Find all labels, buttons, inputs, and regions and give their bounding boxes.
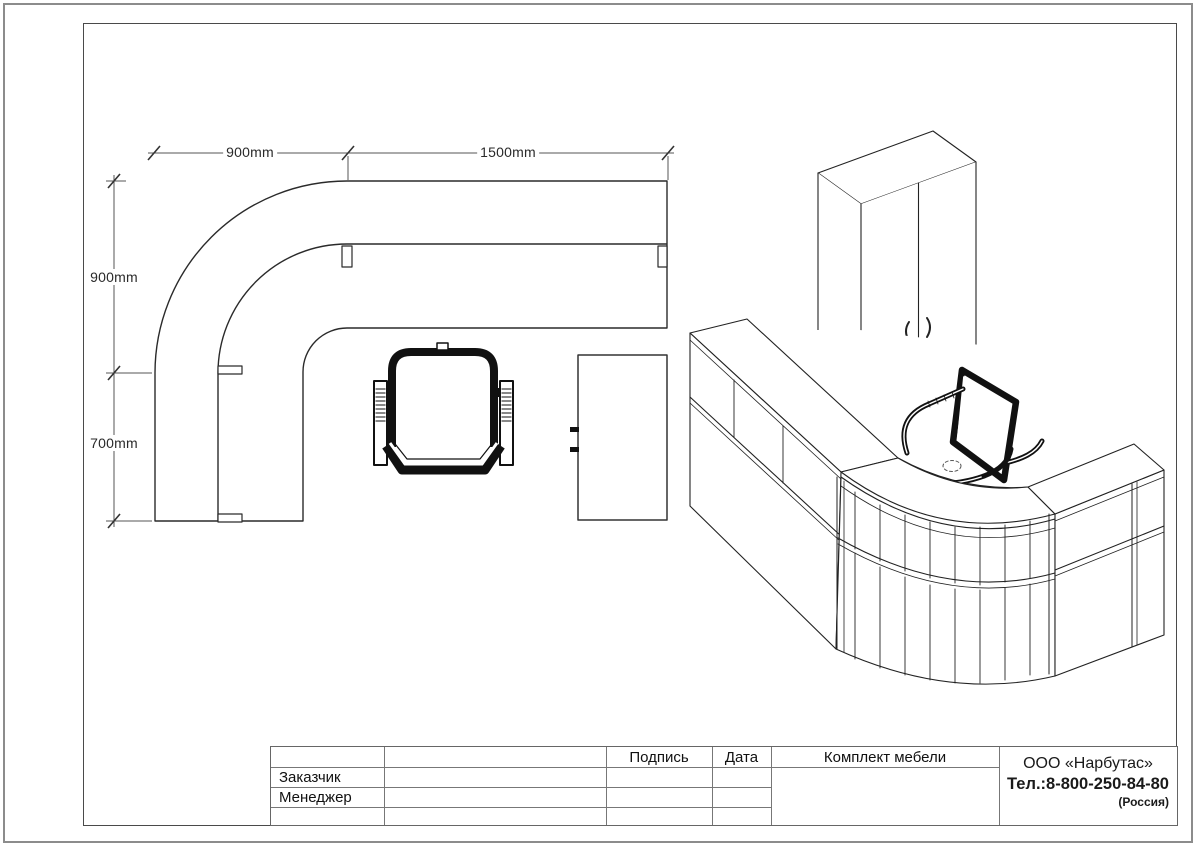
plan-pedestal-handle — [570, 447, 579, 452]
plan-view — [155, 181, 667, 522]
iso-counter-corner — [836, 458, 1055, 684]
company-phone: Тел.:8-800-250-84-80 — [999, 775, 1177, 794]
plan-chair-tab — [437, 343, 448, 350]
company-name: ООО «Нарбутас» — [999, 755, 1177, 773]
company-country: (Россия) — [999, 795, 1177, 809]
company-info: ООО «Нарбутас» Тел.:8-800-250-84-80 (Рос… — [999, 747, 1177, 825]
furniture-set-header: Комплект мебели — [771, 747, 999, 767]
dim-label-900-side: 900mm — [87, 269, 141, 285]
drawing-sheet: 900mm 1500mm 900mm 700mm Подпись Дата Ко… — [0, 0, 1200, 850]
title-block-divider — [271, 807, 771, 808]
title-block: Подпись Дата Комплект мебели Заказчик Ме… — [270, 746, 1178, 826]
dim-label-700-side: 700mm — [87, 435, 141, 451]
plan-pedestal — [570, 355, 667, 520]
plan-chair-backrest — [386, 440, 501, 470]
iso-view — [690, 131, 1164, 684]
dim-label-1500-top: 1500mm — [477, 144, 539, 160]
signature-header: Подпись — [606, 747, 712, 767]
date-header: Дата — [712, 747, 771, 767]
manager-label: Менеджер — [271, 787, 384, 807]
drawing-canvas — [0, 0, 1200, 850]
plan-chair — [374, 343, 513, 470]
plan-pedestal-handle — [570, 427, 579, 432]
title-block-divider — [384, 747, 385, 825]
dim-label-900-top: 900mm — [223, 144, 277, 160]
customer-label: Заказчик — [271, 767, 384, 787]
